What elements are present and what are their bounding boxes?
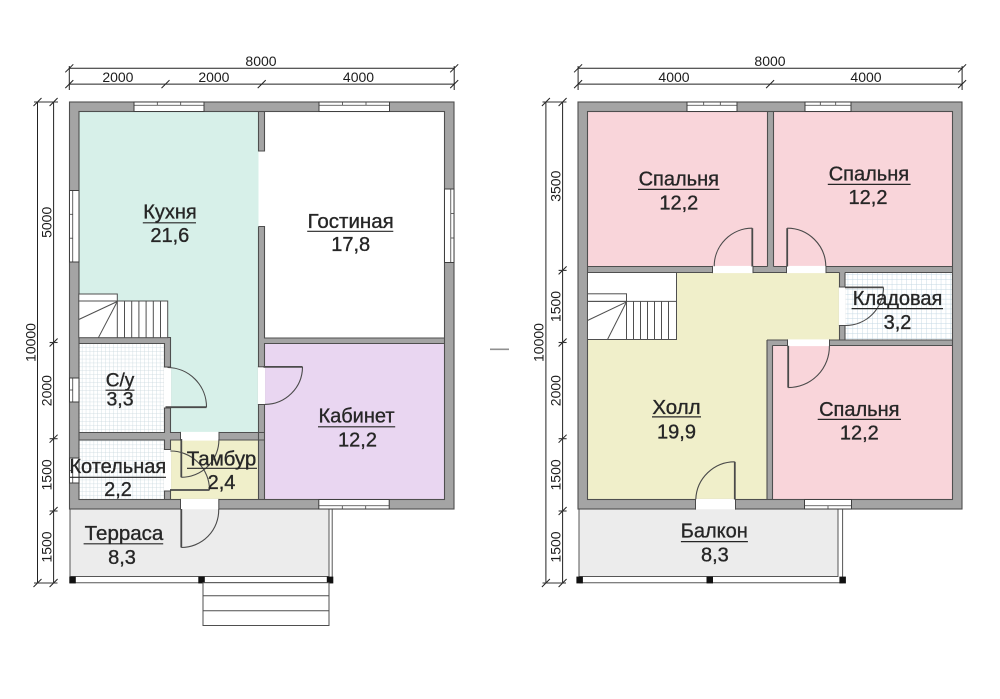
svg-text:2,2: 2,2 bbox=[104, 479, 132, 501]
svg-text:Котельная: Котельная bbox=[69, 456, 166, 478]
svg-text:Балкон: Балкон bbox=[681, 520, 748, 542]
svg-text:5000: 5000 bbox=[38, 207, 54, 238]
svg-text:12,2: 12,2 bbox=[338, 430, 377, 452]
svg-text:4000: 4000 bbox=[850, 69, 881, 85]
svg-text:3500: 3500 bbox=[547, 170, 563, 201]
svg-text:4000: 4000 bbox=[658, 69, 689, 85]
svg-text:1500: 1500 bbox=[38, 531, 54, 562]
svg-text:10000: 10000 bbox=[531, 323, 547, 362]
svg-text:12,2: 12,2 bbox=[840, 423, 879, 445]
svg-text:19,9: 19,9 bbox=[657, 422, 696, 444]
svg-text:Тамбур: Тамбур bbox=[187, 448, 257, 471]
svg-text:2000: 2000 bbox=[547, 375, 563, 406]
svg-text:Кабинет: Кабинет bbox=[318, 406, 394, 428]
svg-text:1500: 1500 bbox=[547, 291, 563, 322]
svg-text:8000: 8000 bbox=[754, 53, 785, 69]
svg-text:3,3: 3,3 bbox=[106, 389, 133, 411]
svg-text:Спальня: Спальня bbox=[639, 169, 719, 191]
svg-text:1500: 1500 bbox=[547, 459, 563, 490]
svg-text:Кладовая: Кладовая bbox=[853, 288, 943, 310]
svg-text:10000: 10000 bbox=[22, 323, 38, 362]
svg-text:2,4: 2,4 bbox=[208, 472, 236, 494]
svg-text:1500: 1500 bbox=[547, 531, 563, 562]
svg-text:8,3: 8,3 bbox=[701, 545, 729, 567]
svg-text:1500: 1500 bbox=[38, 459, 54, 490]
svg-text:21,6: 21,6 bbox=[150, 225, 189, 247]
svg-text:2000: 2000 bbox=[198, 69, 229, 85]
svg-text:3,2: 3,2 bbox=[884, 312, 912, 334]
svg-text:12,2: 12,2 bbox=[659, 192, 698, 214]
svg-text:2000: 2000 bbox=[102, 69, 133, 85]
svg-text:4000: 4000 bbox=[343, 69, 374, 85]
svg-text:Спальня: Спальня bbox=[829, 164, 909, 186]
svg-text:17,8: 17,8 bbox=[331, 234, 370, 256]
svg-text:Гостиная: Гостиная bbox=[308, 210, 394, 233]
svg-text:Терраса: Терраса bbox=[85, 522, 164, 545]
svg-text:12,2: 12,2 bbox=[849, 187, 888, 209]
svg-text:8,3: 8,3 bbox=[108, 547, 136, 569]
svg-text:Кухня: Кухня bbox=[143, 202, 197, 224]
svg-text:2000: 2000 bbox=[38, 375, 54, 406]
svg-text:Спальня: Спальня bbox=[819, 399, 899, 421]
svg-text:8000: 8000 bbox=[245, 53, 276, 69]
svg-text:Холл: Холл bbox=[652, 396, 700, 419]
